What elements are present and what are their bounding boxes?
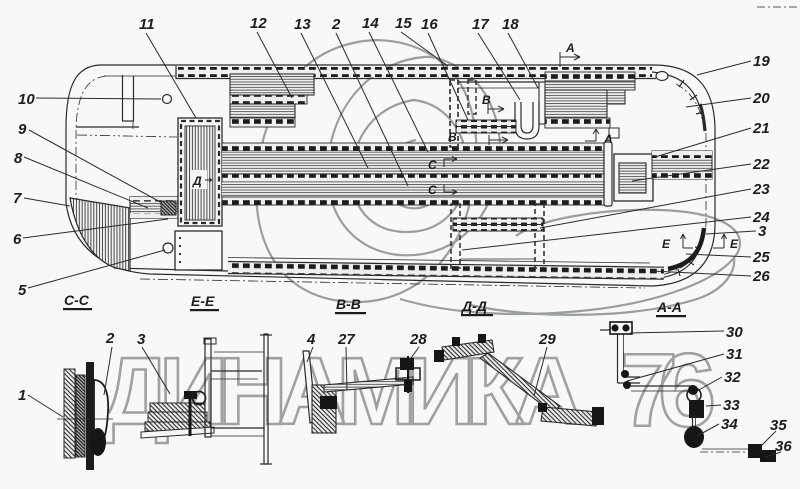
svg-text:Е-Е: Е-Е [191, 293, 215, 309]
svg-text:33: 33 [723, 397, 740, 414]
svg-text:31: 31 [726, 346, 743, 363]
svg-text:С-С: С-С [64, 292, 90, 308]
svg-text:15: 15 [395, 15, 412, 32]
svg-text:36: 36 [775, 438, 792, 455]
svg-text:30: 30 [726, 324, 743, 341]
svg-text:В: В [482, 93, 491, 107]
svg-text:А: А [565, 41, 575, 55]
svg-text:11: 11 [139, 16, 155, 33]
svg-text:13: 13 [294, 16, 311, 33]
svg-text:32: 32 [724, 369, 741, 386]
svg-text:Д-Д: Д-Д [461, 298, 487, 314]
svg-text:В-В: В-В [336, 296, 361, 312]
svg-text:1: 1 [18, 387, 26, 404]
svg-text:19: 19 [753, 53, 770, 70]
svg-text:Д: Д [192, 174, 202, 188]
svg-text:3: 3 [758, 223, 767, 240]
svg-text:А: А [603, 132, 613, 146]
svg-text:17: 17 [472, 16, 489, 33]
svg-text:С: С [428, 183, 437, 197]
svg-text:34: 34 [721, 416, 738, 433]
svg-text:22: 22 [752, 156, 770, 173]
svg-text:3: 3 [137, 331, 146, 348]
svg-text:16: 16 [421, 16, 438, 33]
svg-text:Е: Е [662, 237, 671, 251]
svg-text:А-А: А-А [656, 299, 682, 315]
svg-text:2: 2 [105, 330, 115, 347]
svg-text:7: 7 [13, 190, 22, 207]
svg-text:С: С [428, 158, 437, 172]
svg-text:26: 26 [752, 268, 770, 285]
svg-text:4: 4 [306, 331, 316, 348]
svg-text:10: 10 [18, 91, 35, 108]
svg-text:28: 28 [409, 331, 427, 348]
svg-text:12: 12 [250, 15, 267, 32]
svg-text:5: 5 [18, 282, 27, 299]
svg-text:Е: Е [730, 237, 739, 251]
svg-text:6: 6 [13, 231, 22, 248]
svg-text:14: 14 [362, 15, 379, 32]
svg-text:8: 8 [14, 150, 23, 167]
svg-text:29: 29 [538, 331, 556, 348]
svg-text:2: 2 [331, 16, 341, 33]
svg-text:23: 23 [752, 181, 770, 198]
svg-text:21: 21 [752, 120, 770, 137]
svg-text:20: 20 [752, 90, 770, 107]
svg-text:9: 9 [18, 121, 27, 138]
svg-text:18: 18 [502, 16, 519, 33]
svg-text:В: В [448, 130, 457, 144]
svg-text:35: 35 [770, 417, 787, 434]
svg-text:27: 27 [337, 331, 355, 348]
svg-text:25: 25 [752, 249, 770, 266]
